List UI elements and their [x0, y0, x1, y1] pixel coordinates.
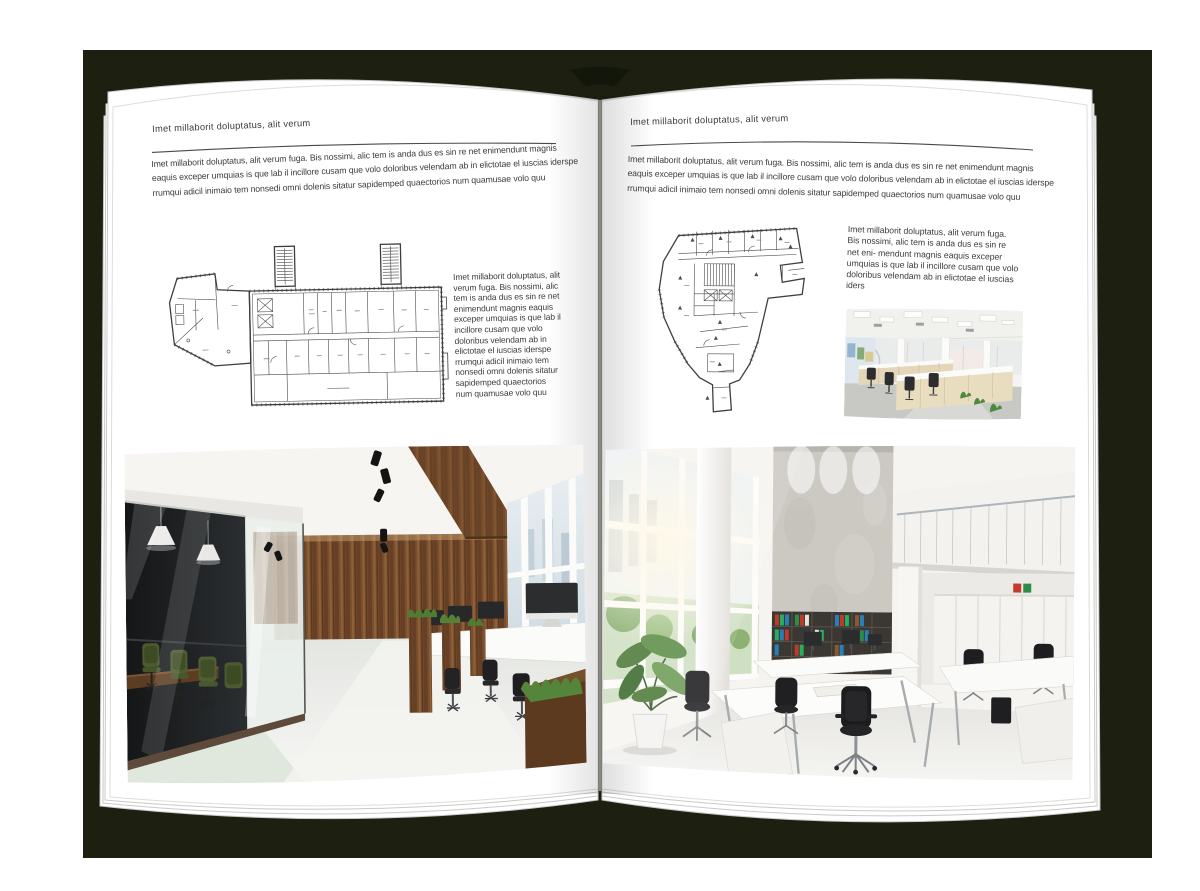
plan-door-arcs — [186, 282, 405, 365]
waste-bin — [991, 697, 1011, 723]
side-cabinet — [721, 711, 794, 786]
glass-meeting-room — [125, 500, 248, 761]
desk-pedestal — [1015, 698, 1075, 765]
right-side-text: Imet millaborit doluptatus, alit verum f… — [846, 224, 1020, 297]
first-aid-sign — [1013, 584, 1021, 593]
brochure-mockup: Imet millaborit doluptatus, alit verum I… — [0, 0, 1200, 891]
plan-outline — [168, 243, 448, 407]
plan-stairs-elevators — [704, 264, 734, 301]
plan-annotations — [683, 240, 797, 399]
plan-annotations — [193, 301, 437, 391]
foreground-planter — [521, 669, 588, 789]
left-side-text: Imet millaborit doluptatus, alit verum f… — [453, 270, 563, 400]
right-header-rule — [629, 138, 1037, 154]
plan-wall-hatch — [659, 227, 797, 364]
plan-partitions — [678, 229, 805, 389]
left-floor-plan — [156, 235, 450, 413]
right-small-photo-workstations — [844, 307, 1023, 423]
right-floor-plan — [647, 219, 834, 418]
right-photo-office-atrium — [603, 442, 1077, 788]
exit-sign — [1023, 584, 1031, 593]
left-photo-office-wood-glass — [124, 445, 588, 793]
